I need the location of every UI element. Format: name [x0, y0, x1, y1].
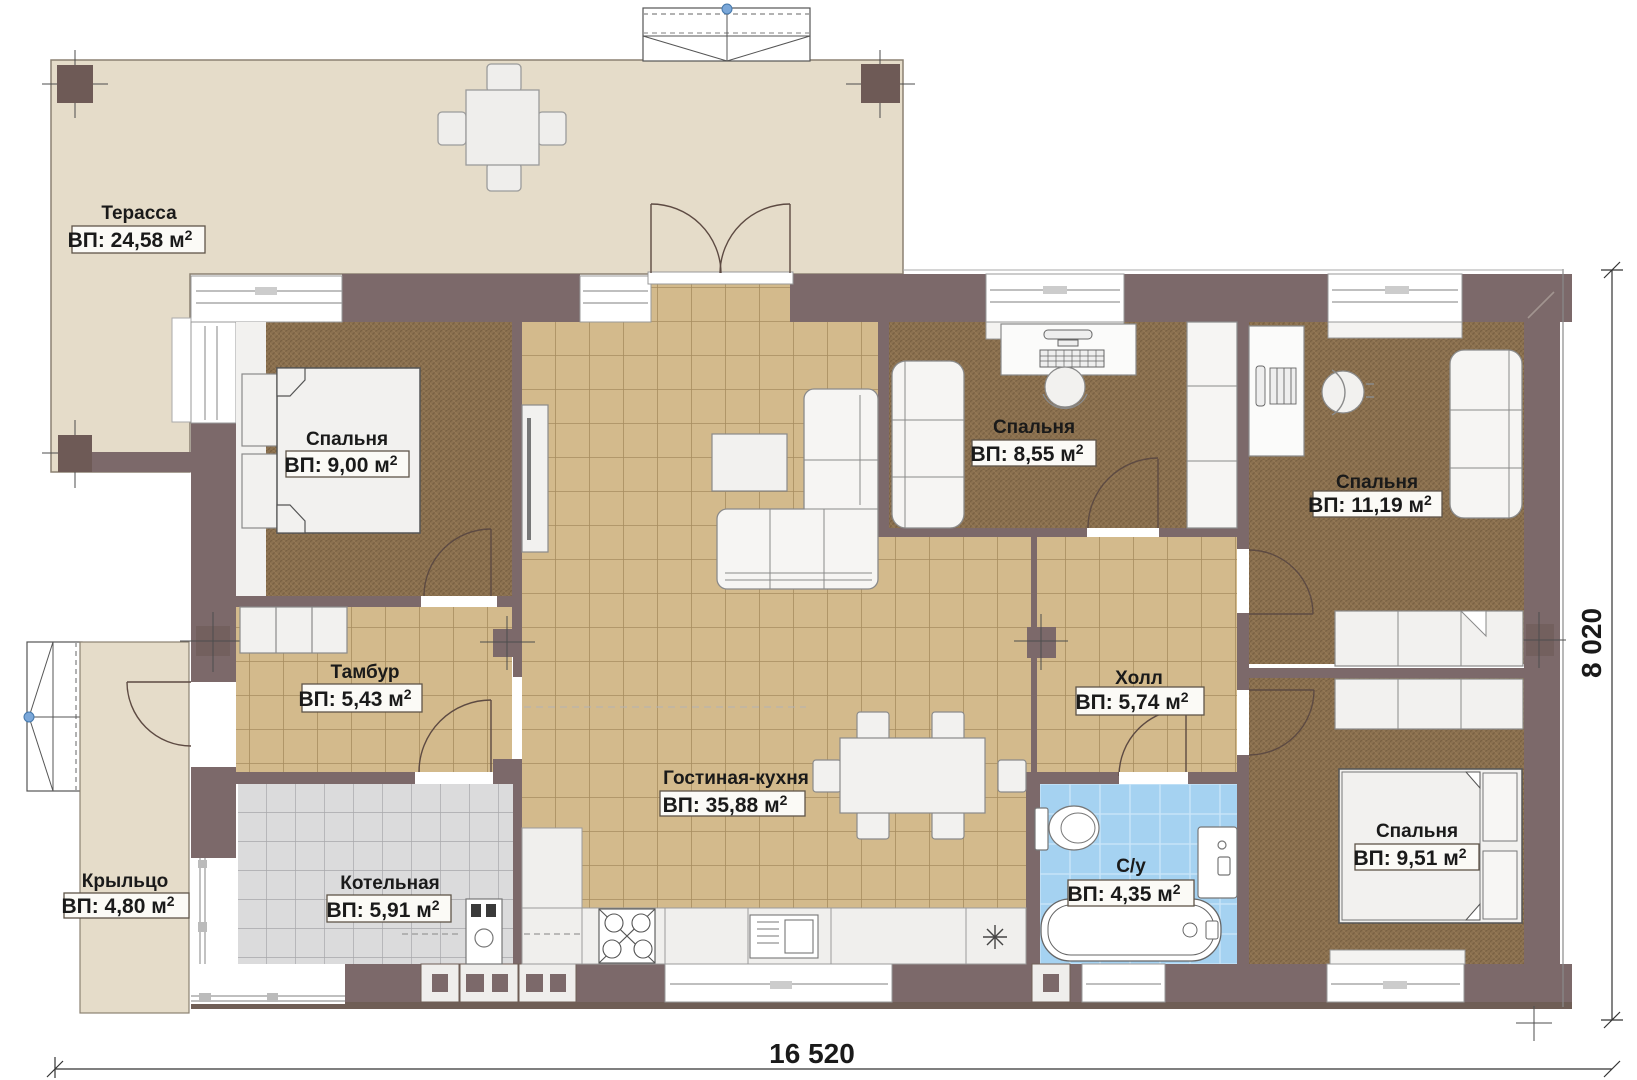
svg-text:ВП: 4,80 м2: ВП: 4,80 м2	[61, 893, 174, 918]
svg-text:Спальня: Спальня	[306, 429, 388, 450]
svg-text:Крыльцо: Крыльцо	[82, 871, 168, 892]
svg-text:С/у: С/у	[1116, 856, 1146, 877]
svg-text:ВП: 9,51 м2: ВП: 9,51 м2	[1353, 845, 1466, 870]
svg-text:Спальня: Спальня	[1376, 821, 1458, 842]
svg-text:Гостиная-кухня: Гостиная-кухня	[663, 768, 809, 789]
svg-text:ВП: 11,19 м2: ВП: 11,19 м2	[1308, 492, 1432, 517]
svg-text:16 520: 16 520	[769, 1038, 855, 1069]
svg-text:ВП: 24,58 м2: ВП: 24,58 м2	[68, 227, 193, 252]
svg-text:8 020: 8 020	[1576, 608, 1607, 678]
svg-text:ВП: 8,55 м2: ВП: 8,55 м2	[970, 441, 1083, 466]
svg-text:ВП: 35,88 м2: ВП: 35,88 м2	[663, 792, 788, 817]
svg-text:Котельная: Котельная	[340, 873, 439, 894]
svg-text:Тамбур: Тамбур	[331, 662, 400, 683]
svg-text:ВП: 9,00 м2: ВП: 9,00 м2	[284, 452, 397, 477]
svg-text:Спальня: Спальня	[993, 417, 1075, 438]
svg-text:ВП: 5,43 м2: ВП: 5,43 м2	[298, 686, 411, 711]
svg-text:ВП: 5,74 м2: ВП: 5,74 м2	[1075, 689, 1188, 714]
svg-text:Спальня: Спальня	[1336, 472, 1418, 493]
svg-text:ВП: 4,35 м2: ВП: 4,35 м2	[1067, 881, 1180, 906]
svg-text:Терасса: Терасса	[101, 203, 177, 224]
svg-text:ВП: 5,91 м2: ВП: 5,91 м2	[326, 897, 439, 922]
svg-text:Холл: Холл	[1115, 668, 1163, 689]
